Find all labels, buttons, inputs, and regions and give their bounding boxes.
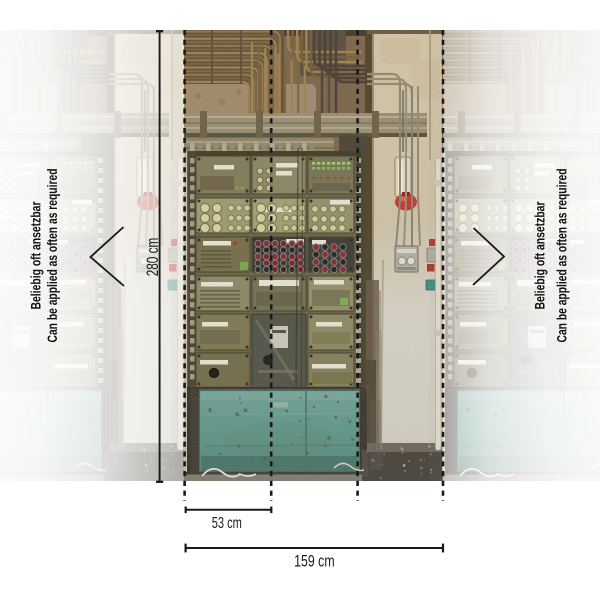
svg-text:159 cm: 159 cm bbox=[294, 552, 335, 570]
svg-text:280 cm: 280 cm bbox=[144, 238, 162, 277]
svg-text:53 cm: 53 cm bbox=[212, 515, 242, 532]
svg-text:Can be applied as often as req: Can be applied as often as required bbox=[554, 169, 570, 343]
svg-text:Can be applied as often as req: Can be applied as often as required bbox=[44, 169, 60, 343]
svg-text:Beliebig oft ansetzbar: Beliebig oft ansetzbar bbox=[532, 201, 548, 309]
svg-text:Beliebig oft ansetzbar: Beliebig oft ansetzbar bbox=[28, 201, 44, 309]
